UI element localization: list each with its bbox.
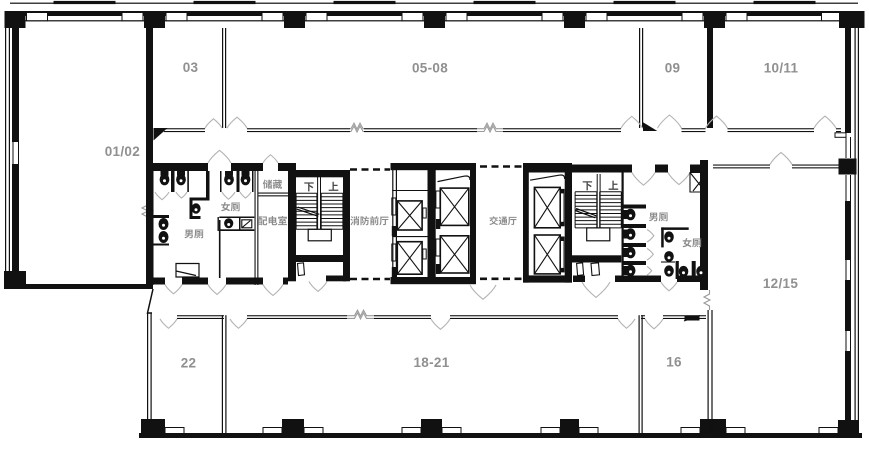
svg-text:09: 09	[665, 61, 681, 76]
svg-text:05-08: 05-08	[412, 61, 448, 76]
svg-text:01/02: 01/02	[105, 144, 140, 159]
svg-text:10/11: 10/11	[764, 61, 799, 76]
svg-text:16: 16	[666, 355, 682, 370]
svg-text:22: 22	[181, 356, 197, 371]
svg-text:12/15: 12/15	[763, 276, 798, 291]
svg-text:03: 03	[183, 60, 199, 75]
svg-text:18-21: 18-21	[413, 355, 449, 370]
